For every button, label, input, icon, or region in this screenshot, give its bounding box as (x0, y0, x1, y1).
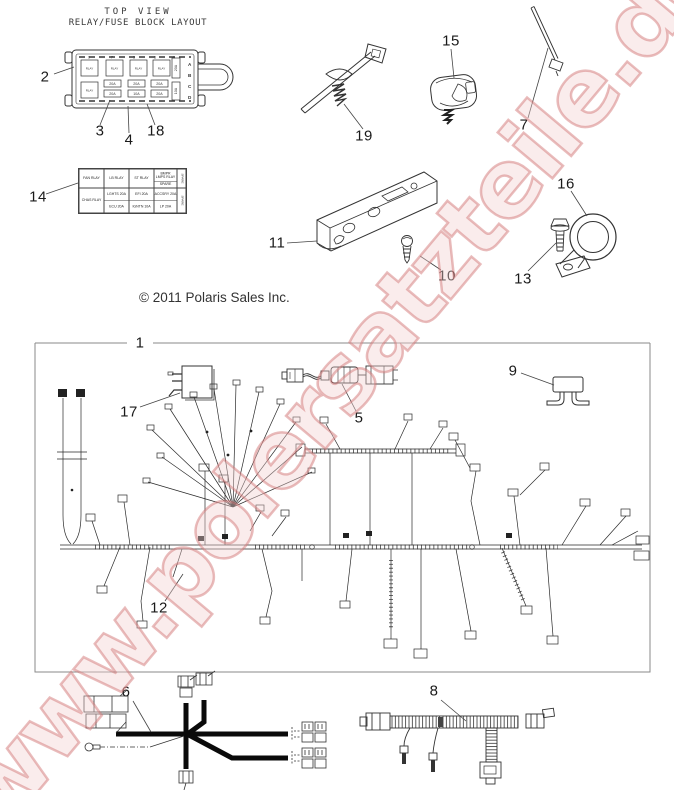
side-fuse-value: 10A (174, 87, 178, 94)
sensor-cap-drawing (429, 73, 478, 124)
row-letter: A (188, 62, 192, 67)
fuse-block-drawing: RLAY RLAY RLAY RLAY RLAY 20A 20A 20A 20A… (65, 50, 233, 108)
legend-cell: LB RLAY (104, 169, 129, 188)
pin-number: 7 (111, 56, 113, 60)
parts-diagram-page: RLAY RLAY RLAY RLAY RLAY 20A 20A 20A 20A… (0, 0, 674, 790)
bracket-drawing (317, 172, 437, 251)
callout-4: 4 (125, 132, 134, 149)
legend-cell: LGHTS 20AECU 20A (104, 188, 129, 213)
fuse-value: 20A (156, 92, 163, 96)
copyright-text: © 2011 Polaris Sales Inc. (139, 290, 290, 305)
legend-strip: SPARE (155, 182, 177, 188)
callout-6: 6 (122, 684, 131, 701)
pin-number: 9 (88, 56, 90, 60)
callout-8: 8 (430, 683, 439, 700)
pin-number: 1 (173, 56, 175, 60)
wiring-harness-drawing (57, 380, 649, 658)
callout-14: 14 (29, 189, 47, 206)
legend-side-cell: SPARE (177, 169, 186, 188)
callout-12: 12 (150, 600, 168, 617)
callout-2: 2 (41, 69, 50, 86)
callout-13: 13 (514, 271, 532, 288)
side-fuse-value: 20A (174, 64, 178, 71)
legend-cell: FAN RLAY (79, 169, 104, 188)
relay-label: RLAY (86, 67, 94, 71)
relay-label: RLAY (111, 67, 119, 71)
callout-16: 16 (557, 176, 575, 193)
callout-7: 7 (520, 117, 529, 134)
callout-9: 9 (509, 363, 518, 380)
legend-side-cell: SPARE (177, 188, 186, 213)
callout-leader-lines (46, 48, 587, 732)
rod-drawing (531, 7, 563, 77)
header-line1: TOP VIEW (58, 7, 218, 17)
callout-17: 17 (120, 404, 138, 421)
fuse-value: 20A (109, 82, 116, 86)
row-letter: C (188, 84, 192, 89)
callout-18: 18 (147, 123, 165, 140)
diagram-header: TOP VIEW RELAY/FUSE BLOCK LAYOUT (58, 7, 218, 28)
bolt-drawing (551, 219, 569, 251)
legend-cell: ST RLAY (129, 169, 154, 188)
row-letter: D (188, 95, 192, 100)
legend-cell: EFI 20AIGNTN 10A (129, 188, 154, 213)
fuse-value: 20A (156, 82, 163, 86)
relay-label: RLAY (158, 67, 166, 71)
callout-15: 15 (442, 33, 460, 50)
relay-label: RLAY (86, 89, 94, 93)
callout-11: 11 (269, 235, 286, 252)
clamp-drawing (556, 214, 616, 277)
thick-harness-drawing (84, 671, 326, 790)
legend-cell: ACCSRY 20ALP 20A (154, 188, 177, 213)
fuse-value: 20A (109, 92, 116, 96)
jumper-harness-drawing (360, 708, 554, 784)
relay-fuse-legend: FAN RLAY LB RLAY ST RLAY BMPR LMPS RLAY … (78, 168, 187, 214)
fuse-value: 10A (133, 92, 140, 96)
header-line2: RELAY/FUSE BLOCK LAYOUT (58, 18, 218, 28)
callout-3: 3 (96, 123, 105, 140)
fuse-link-drawing (282, 366, 398, 384)
callout-10: 10 (438, 268, 456, 285)
callout-5: 5 (355, 410, 364, 427)
callout-1: 1 (136, 335, 145, 352)
callout-19: 19 (355, 128, 373, 145)
row-letter: B (188, 73, 192, 78)
fuse-value: 20A (133, 82, 140, 86)
relay-label: RLAY (135, 67, 143, 71)
screw-drawing (402, 236, 413, 264)
mount-bracket-drawing (547, 377, 589, 405)
cable-tie-drawing (301, 44, 386, 113)
pin-number: 5 (133, 56, 135, 60)
pin-number: 3 (154, 56, 156, 60)
diagram-line-art: RLAY RLAY RLAY RLAY RLAY 20A 20A 20A 20A… (0, 0, 674, 790)
legend-cell: CHAS RLAY (79, 188, 104, 213)
legend-cell: BMPR LMPS RLAY SPARE (154, 169, 177, 188)
